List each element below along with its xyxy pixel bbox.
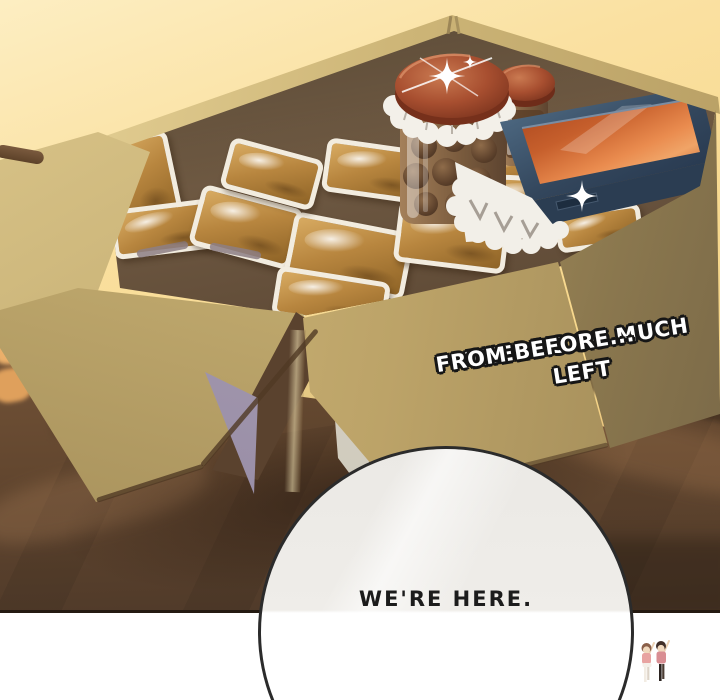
chibi-left-figure (642, 643, 655, 682)
speech-bubble: WE'RE HERE. (258, 446, 634, 700)
speech-bubble-text: WE'RE HERE. (261, 587, 631, 611)
chibi-characters-mark (636, 636, 672, 688)
chibi-right-figure (656, 641, 669, 681)
comic-page: THERE'S SO MUCH LEFT FROM BEFORE... WE'R… (0, 0, 720, 700)
